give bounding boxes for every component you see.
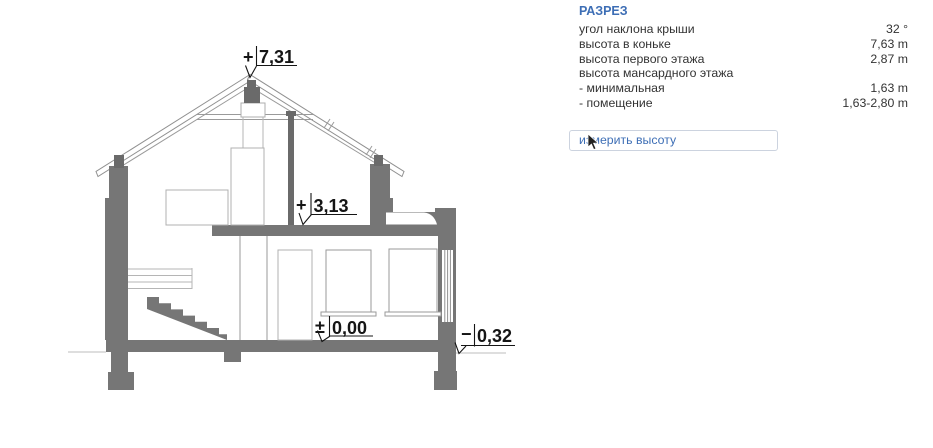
level-sign: +: [243, 47, 254, 67]
attic-partition: [166, 190, 228, 225]
middle-footing: [224, 352, 241, 362]
window-1: [326, 250, 371, 312]
section-drawing: + 7,31 + 3,13 ± 0,00 − 0,32: [0, 0, 560, 448]
level-marker-ridge: + 7,31: [243, 46, 297, 78]
spec-value: 1,63-2,80 m: [842, 96, 908, 111]
ridge-chimney: [244, 87, 260, 103]
attic-door: [231, 148, 264, 225]
page: + 7,31 + 3,13 ± 0,00 − 0,32: [0, 0, 933, 448]
window-2: [389, 249, 437, 312]
left-footing: [108, 372, 134, 390]
level-value: 7,31: [259, 47, 294, 67]
level-sign: ±: [315, 317, 325, 337]
spec-label: высота мансардного этажа: [579, 66, 733, 81]
spec-row-room: - помещение 1,63-2,80 m: [579, 96, 908, 111]
level-sign: +: [296, 195, 307, 215]
chimney-base-box: [241, 103, 265, 117]
interior-door: [278, 250, 312, 340]
level-value: 0,00: [332, 318, 367, 338]
window-2-sill: [385, 312, 441, 316]
ridge-chimney-cap: [247, 80, 256, 88]
measure-height-button[interactable]: измерить высоту: [569, 130, 778, 151]
ground-floor-interior: [128, 236, 441, 340]
spec-value: 32 °: [886, 22, 908, 37]
spec-row-minimal: - минимальная 1,63 m: [579, 81, 908, 96]
flue-pipe: [288, 115, 294, 225]
left-wall-post: [114, 155, 124, 168]
left-wall: [109, 166, 128, 340]
ground-slab: [106, 340, 456, 352]
right-footing: [434, 371, 457, 390]
spec-row-attic-height: высота мансардного этажа: [579, 66, 908, 81]
spec-label: - помещение: [579, 96, 653, 111]
spec-value: 1,63 m: [870, 81, 908, 96]
level-marker-attic-floor: + 3,13: [296, 193, 357, 225]
panel-title: РАЗРЕЗ: [579, 4, 908, 19]
level-marker-terrain: − 0,32: [455, 324, 515, 354]
attic-floor-slab: [212, 225, 455, 236]
rafter-right: [254, 89, 377, 164]
spec-row-ridge-height: высота в коньке 7,63 m: [579, 37, 908, 52]
staircase: [147, 297, 227, 340]
level-sign: −: [461, 324, 472, 344]
spec-value: 2,87 m: [870, 52, 908, 67]
cornice-cove: [386, 213, 437, 225]
upper-stair-treads: [128, 268, 192, 289]
info-panel: РАЗРЕЗ угол наклона крыши 32 ° высота в …: [579, 4, 908, 111]
window-1-sill: [321, 312, 376, 316]
spec-value: 7,63 m: [870, 37, 908, 52]
spec-label: высота первого этажа: [579, 52, 704, 67]
spec-label: угол наклона крыши: [579, 22, 695, 37]
level-marker-ground-floor: ± 0,00: [315, 316, 373, 342]
spec-row-roof-angle: угол наклона крыши 32 °: [579, 22, 908, 37]
rafter-left: [122, 89, 246, 166]
right-wall-post: [374, 155, 383, 166]
right-wall-window: [442, 250, 453, 322]
level-value: 0,32: [477, 326, 512, 346]
spec-label: - минимальная: [579, 81, 665, 96]
level-value: 3,13: [314, 196, 349, 216]
spec-row-first-floor-height: высота первого этажа 2,87 m: [579, 52, 908, 67]
spec-label: высота в коньке: [579, 37, 671, 52]
